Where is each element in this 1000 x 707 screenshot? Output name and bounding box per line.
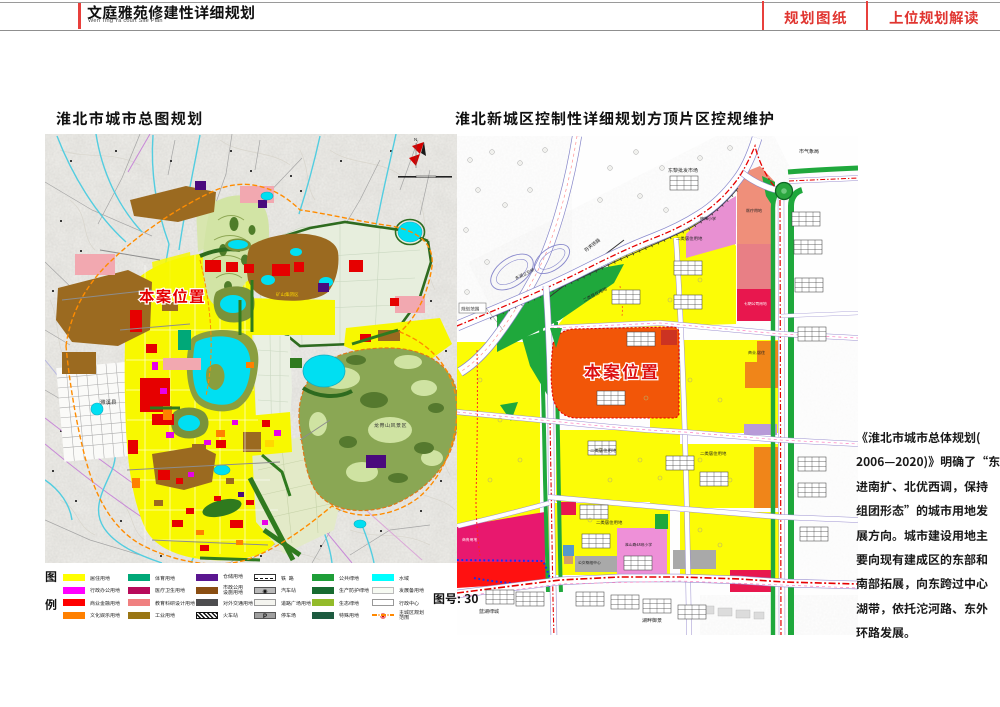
svg-text:医疗用地: 医疗用地: [746, 208, 762, 214]
svg-text:七期公司用地: 七期公司用地: [744, 301, 767, 307]
svg-text:N: N: [414, 137, 417, 142]
svg-text:商业,居住: 商业,居住: [748, 350, 765, 356]
svg-text:龙脊山风景区: 龙脊山风景区: [374, 422, 407, 429]
svg-text:濉溪县: 濉溪县: [100, 398, 117, 406]
svg-text:商务用地: 商务用地: [462, 537, 477, 543]
svg-text:棉阳小学: 棉阳小学: [700, 216, 716, 222]
svg-text:规划范围: 规划范围: [461, 307, 480, 313]
svg-text:矿山集团区: 矿山集团区: [276, 292, 299, 298]
svg-text:二类居住用地: 二类居住用地: [590, 448, 617, 454]
svg-text:淮山路48班小学: 淮山路48班小学: [625, 542, 652, 548]
svg-text:东黎批发市场: 东黎批发市场: [668, 167, 698, 174]
svg-text:二类居住用地: 二类居住用地: [700, 451, 727, 457]
svg-text:二类居住用地: 二类居住用地: [596, 520, 623, 526]
svg-text:本案位置: 本案位置: [139, 285, 206, 307]
svg-text:湖畔御景: 湖畔御景: [642, 617, 662, 624]
svg-text:市气象局: 市气象局: [799, 148, 819, 155]
svg-text:二类居住用地: 二类居住用地: [676, 236, 703, 242]
svg-text:蓝湖绿城: 蓝湖绿城: [479, 608, 499, 615]
svg-text:公交枢纽中心: 公交枢纽中心: [578, 560, 601, 566]
svg-text:本案位置: 本案位置: [584, 358, 660, 383]
